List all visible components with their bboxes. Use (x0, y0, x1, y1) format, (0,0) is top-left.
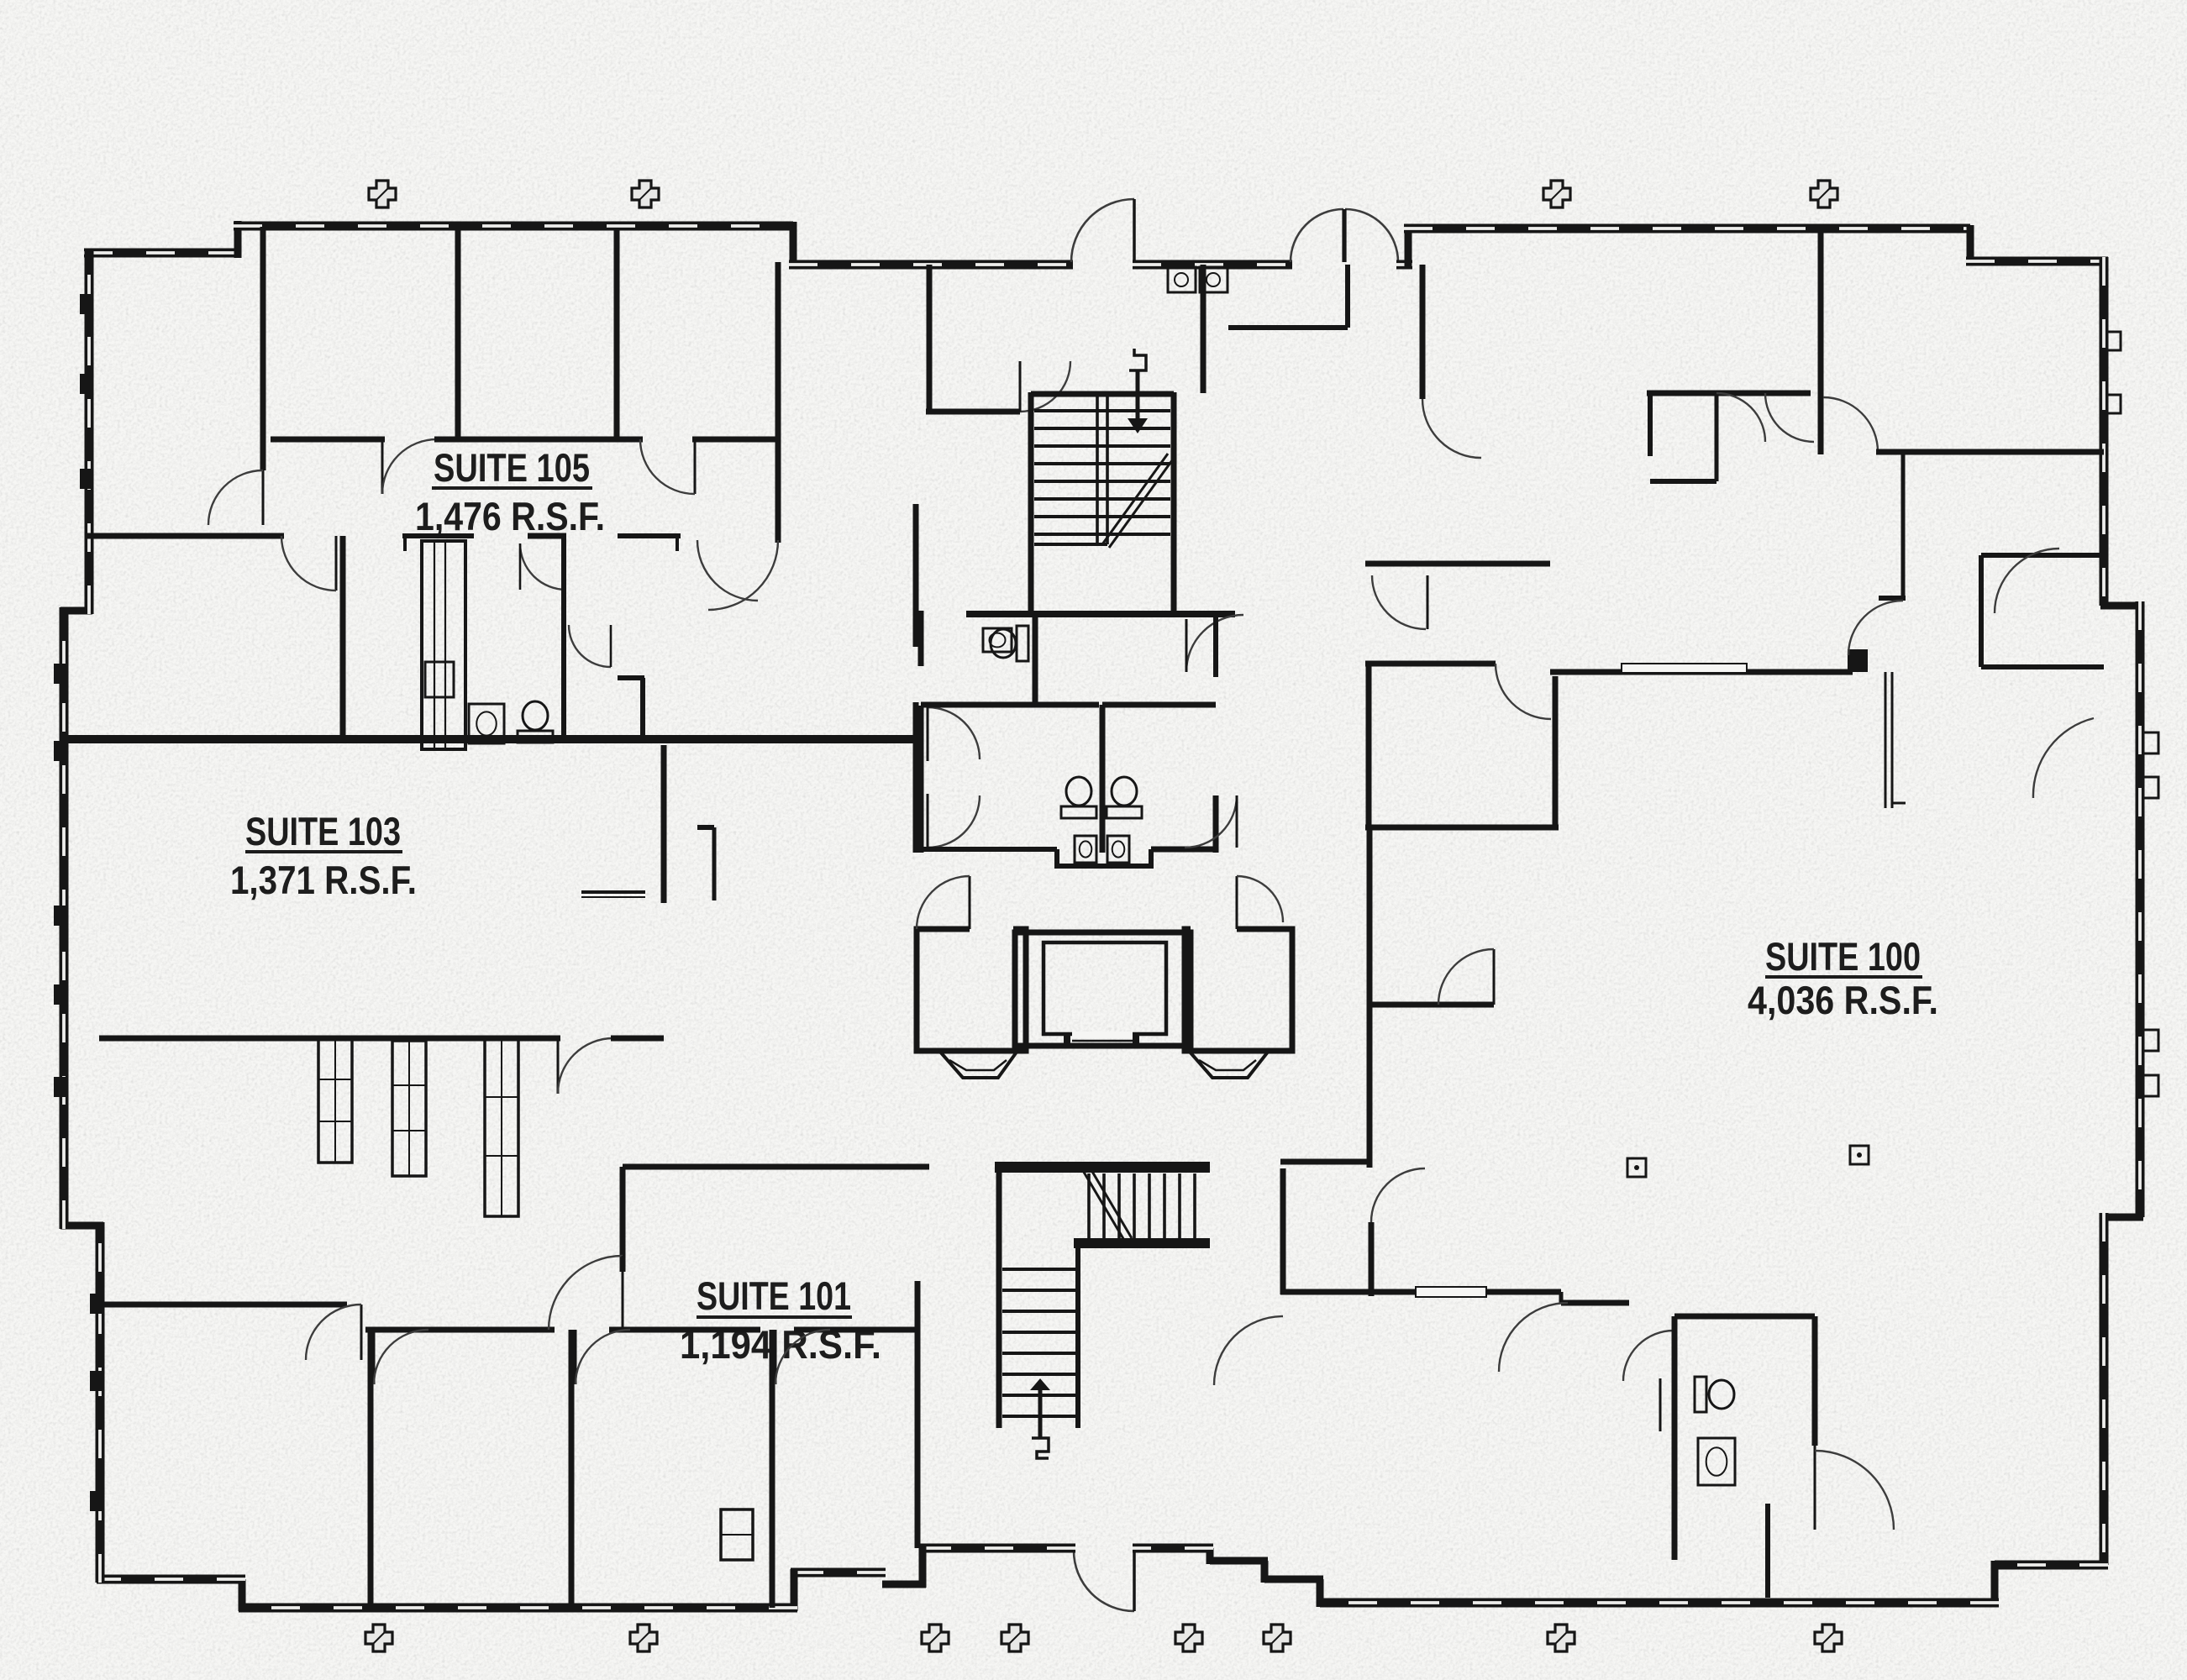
svg-text:1,476 R.S.F.: 1,476 R.S.F. (415, 494, 605, 538)
svg-text:SUITE 105: SUITE 105 (434, 445, 590, 490)
svg-text:SUITE 103: SUITE 103 (245, 809, 401, 853)
svg-text:1,371 R.S.F.: 1,371 R.S.F. (230, 858, 417, 902)
svg-text:4,036 R.S.F.: 4,036 R.S.F. (1748, 978, 1938, 1022)
svg-text:SUITE 101: SUITE 101 (697, 1273, 851, 1318)
svg-text:SUITE 100: SUITE 100 (1765, 934, 1921, 979)
